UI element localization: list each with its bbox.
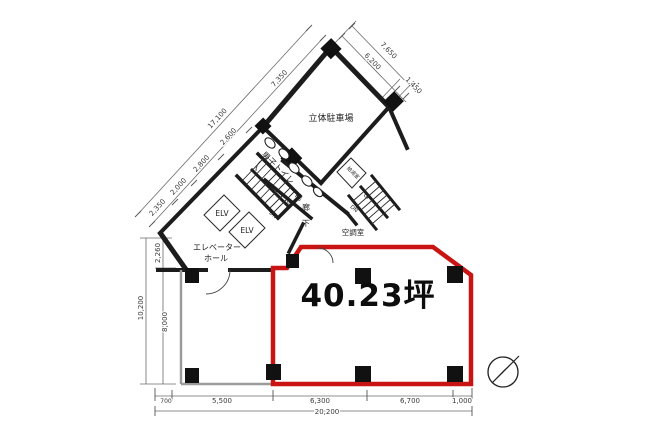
elv1-label: ELV	[215, 209, 229, 218]
dim-bottom-total: 20,200	[315, 408, 340, 416]
corridor-label-1: 廊	[302, 202, 310, 212]
elevators: ELV ELV	[204, 195, 265, 248]
elevator-hall: エレベーター ホール	[193, 243, 241, 263]
elevator-hall-label-1: エレベーター	[193, 243, 241, 252]
mens-toilet: 男子トイレ	[256, 136, 347, 213]
adjacent-room	[158, 268, 273, 384]
dimension-left: 2,260 10,200 8,000	[137, 238, 176, 384]
elv2-label: ELV	[240, 226, 254, 235]
kitchenette-label: 給湯室	[345, 165, 361, 180]
dim-bottom-seg1: 700	[160, 398, 172, 405]
dim-left-total: 10,200	[137, 296, 145, 321]
hvac-room-label: 空調室	[342, 227, 365, 237]
dimension-ticks	[339, 23, 419, 99]
floorplan-page: 2,350 2,000 2,800 2,600 7,350 17,100 7,6…	[0, 0, 650, 431]
dim-bottom-seg2: 5,500	[212, 397, 232, 405]
unit-area-label: 40.23坪	[300, 278, 435, 314]
parking-label: 立体駐車場	[308, 112, 353, 124]
corridor-label-2: 下	[302, 219, 310, 228]
unit-outline: 40.23坪	[266, 247, 471, 384]
dimension-bottom: 700 5,500 6,300 6,700 1,000 20,200	[155, 388, 472, 416]
dim-nw-seg2: 2,000	[169, 177, 189, 197]
stairs-main-dn-label: DN	[268, 210, 278, 220]
dim-bottom-seg5: 1,000	[452, 397, 472, 405]
dim-bottom-seg3: 6,300	[310, 397, 330, 405]
dim-left-upper: 2,260	[154, 243, 162, 263]
floorplan-drawing: 2,350 2,000 2,800 2,600 7,350 17,100 7,6…	[0, 0, 650, 431]
dim-ne-end: 1,450	[404, 76, 424, 96]
north-arrow-icon	[488, 356, 519, 387]
dim-left-lower: 8,000	[161, 312, 169, 332]
dim-ne-outer: 7,650	[379, 41, 399, 61]
elevator-hall-label-2: ホール	[204, 254, 228, 263]
dim-nw-seg4: 2,600	[219, 127, 239, 147]
dim-bottom-seg4: 6,700	[400, 397, 420, 405]
